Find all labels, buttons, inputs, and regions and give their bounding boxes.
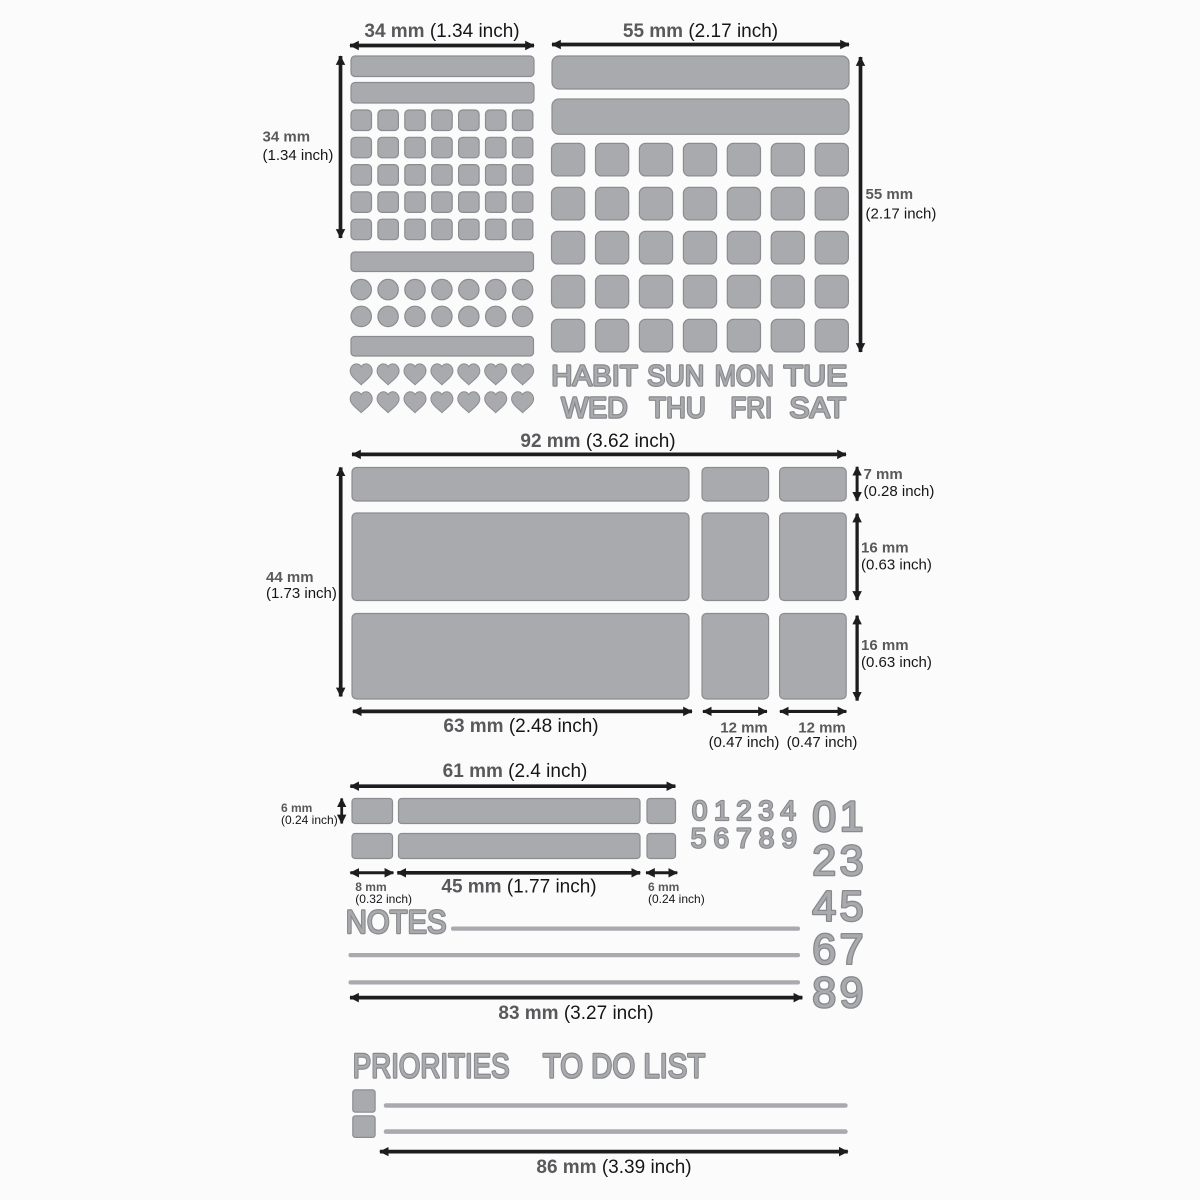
svg-text:PRIORITIES: PRIORITIES (353, 1048, 510, 1086)
svg-text:55 mm (2.17 inch): 55 mm (2.17 inch) (623, 21, 778, 42)
svg-text:FRI: FRI (730, 393, 772, 425)
svg-text:63 mm (2.48 inch): 63 mm (2.48 inch) (443, 716, 598, 737)
svg-text:TO DO LIST: TO DO LIST (543, 1048, 706, 1086)
svg-text:MON: MON (715, 361, 774, 393)
svg-text:86 mm (3.39 inch): 86 mm (3.39 inch) (536, 1157, 691, 1178)
svg-text:SAT: SAT (789, 393, 846, 425)
svg-text:61 mm (2.4 inch): 61 mm (2.4 inch) (443, 761, 588, 782)
svg-text:45 mm (1.77 inch): 45 mm (1.77 inch) (441, 877, 596, 898)
svg-text:92 mm (3.62 inch): 92 mm (3.62 inch) (520, 431, 675, 452)
svg-text:SUN: SUN (647, 361, 704, 393)
svg-text:NOTES: NOTES (346, 904, 447, 940)
svg-text:TUE: TUE (784, 361, 848, 393)
svg-text:83 mm (3.27 inch): 83 mm (3.27 inch) (498, 1003, 653, 1024)
svg-text:WED: WED (561, 393, 628, 425)
svg-text:34 mm (1.34 inch): 34 mm (1.34 inch) (364, 21, 519, 42)
svg-text:HABIT: HABIT (551, 361, 638, 393)
svg-text:THU: THU (649, 393, 706, 425)
